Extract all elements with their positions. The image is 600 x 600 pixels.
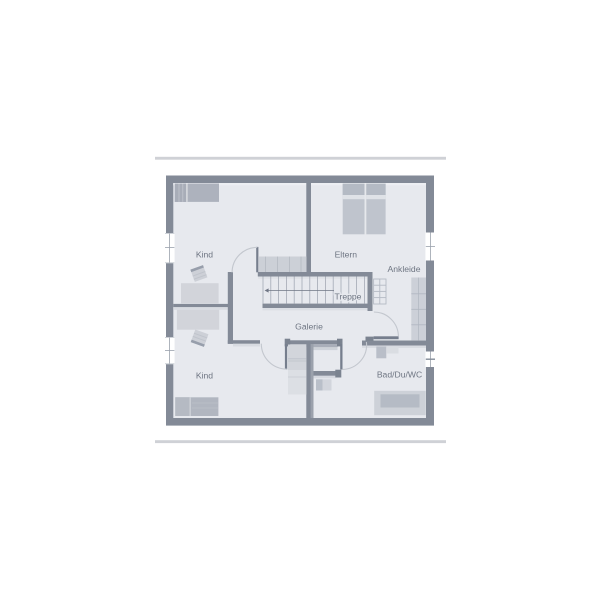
svg-text:Bad/Du/WC: Bad/Du/WC: [377, 370, 422, 380]
svg-text:Galerie: Galerie: [295, 322, 323, 332]
svg-text:Ankleide: Ankleide: [388, 264, 421, 274]
svg-text:Kind: Kind: [196, 370, 213, 380]
svg-text:Treppe: Treppe: [335, 292, 362, 302]
svg-text:Eltern: Eltern: [335, 249, 358, 259]
svg-text:Kind: Kind: [196, 249, 213, 259]
